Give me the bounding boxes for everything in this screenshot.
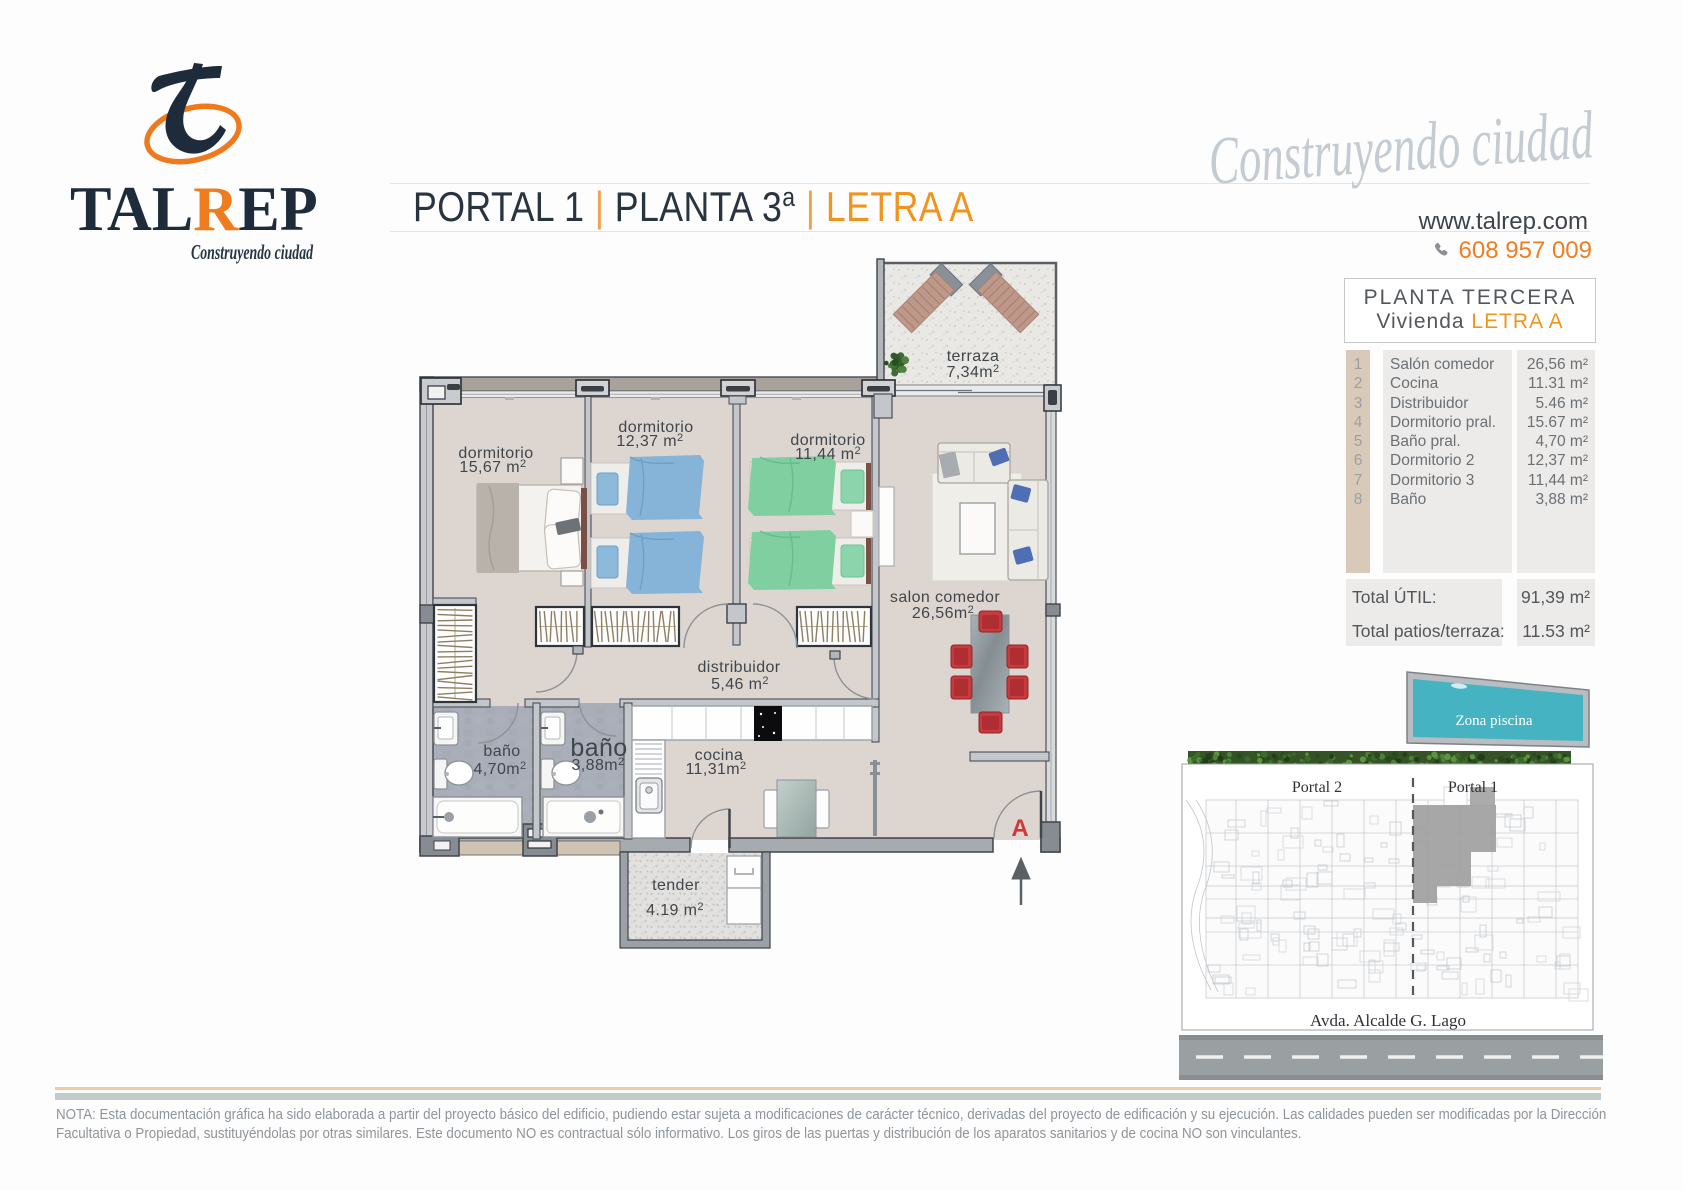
svg-text:26,56m2: 26,56m2 [912,604,974,622]
svg-text:7,34m2: 7,34m2 [947,363,1000,381]
svg-text:11,44 m2: 11,44 m2 [795,445,861,463]
svg-text:Avda. Alcalde G. Lago: Avda. Alcalde G. Lago [1310,1011,1466,1030]
svg-text:Portal 1: Portal 1 [1448,779,1498,796]
svg-text:15,67 m2: 15,67 m2 [459,458,526,476]
svg-text:salon comedor: salon comedor [890,589,1000,606]
svg-text:dormitorio: dormitorio [458,445,533,462]
svg-text:4.19 m2: 4.19 m2 [646,901,704,919]
svg-text:11,31m2: 11,31m2 [685,760,746,778]
svg-text:A: A [1011,815,1028,842]
svg-text:Zona piscina: Zona piscina [1455,713,1532,729]
svg-text:3,88m2: 3,88m2 [572,756,625,774]
svg-text:5,46 m2: 5,46 m2 [711,675,769,693]
svg-text:baño: baño [483,743,520,760]
svg-text:terraza: terraza [947,348,1000,365]
svg-text:12,37 m2: 12,37 m2 [616,432,683,450]
svg-text:4,70m2: 4,70m2 [474,760,527,778]
svg-text:tender: tender [652,877,700,894]
svg-text:cocina: cocina [695,747,744,764]
svg-text:Portal 2: Portal 2 [1292,779,1342,796]
svg-text:distribuidor: distribuidor [697,659,780,676]
svg-text:dormitorio: dormitorio [790,432,865,449]
svg-text:dormitorio: dormitorio [618,419,693,436]
svg-text:baño: baño [570,734,627,762]
